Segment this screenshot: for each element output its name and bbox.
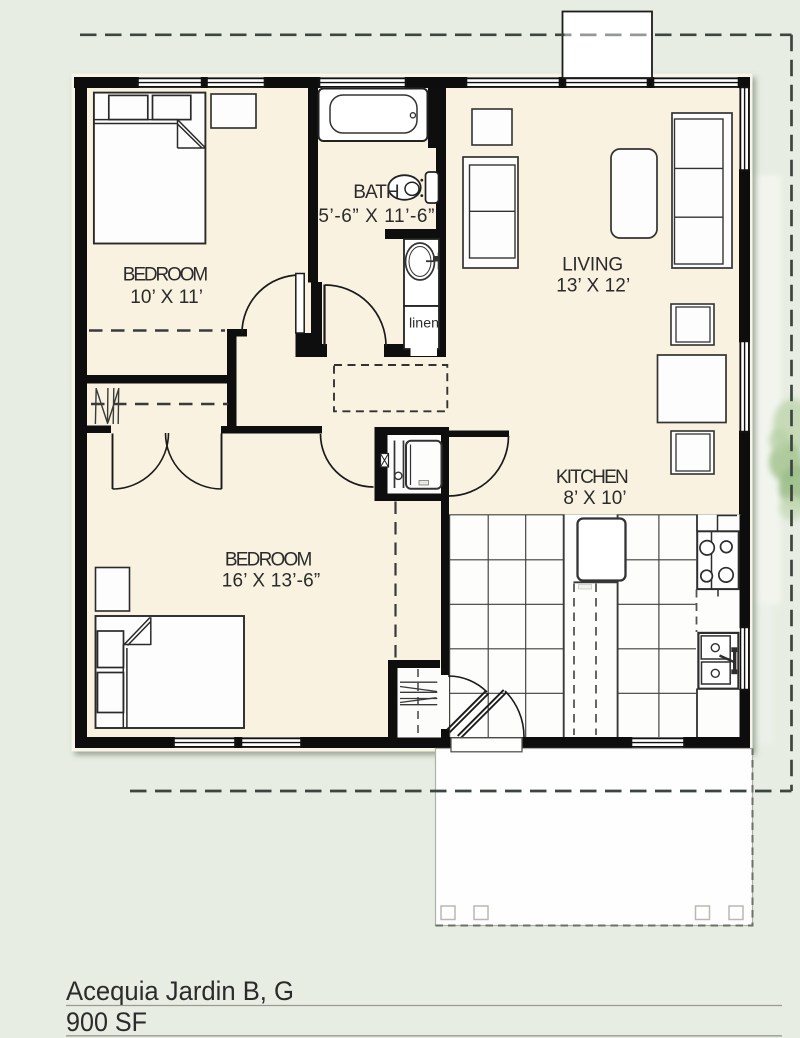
svg-text:900 SF: 900 SF <box>66 1007 147 1037</box>
svg-text:Acequia Jardin B, G: Acequia Jardin B, G <box>66 976 294 1006</box>
svg-text:10’ X 11’: 10’ X 11’ <box>130 287 203 308</box>
svg-text:BATH: BATH <box>353 182 399 203</box>
svg-text:16’ X 13’-6”: 16’ X 13’-6” <box>222 571 321 592</box>
svg-text:BEDROOM: BEDROOM <box>123 265 209 286</box>
svg-text:BEDROOM: BEDROOM <box>225 549 313 570</box>
svg-text:13’ X 12’: 13’ X 12’ <box>556 275 630 296</box>
svg-text:8’ X 10’: 8’ X 10’ <box>563 488 626 509</box>
svg-text:5’-6” X 11’-6”: 5’-6” X 11’-6” <box>318 206 434 227</box>
svg-text:linen: linen <box>409 316 439 331</box>
svg-text:KITCHEN: KITCHEN <box>556 467 629 488</box>
svg-text:LIVING: LIVING <box>562 255 623 276</box>
